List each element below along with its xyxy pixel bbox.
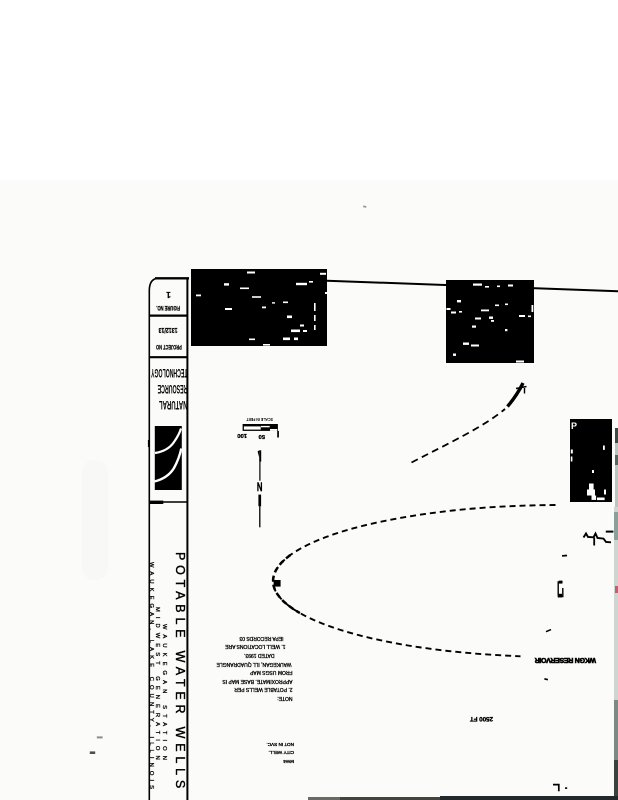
svg-text:P: P	[571, 421, 577, 431]
